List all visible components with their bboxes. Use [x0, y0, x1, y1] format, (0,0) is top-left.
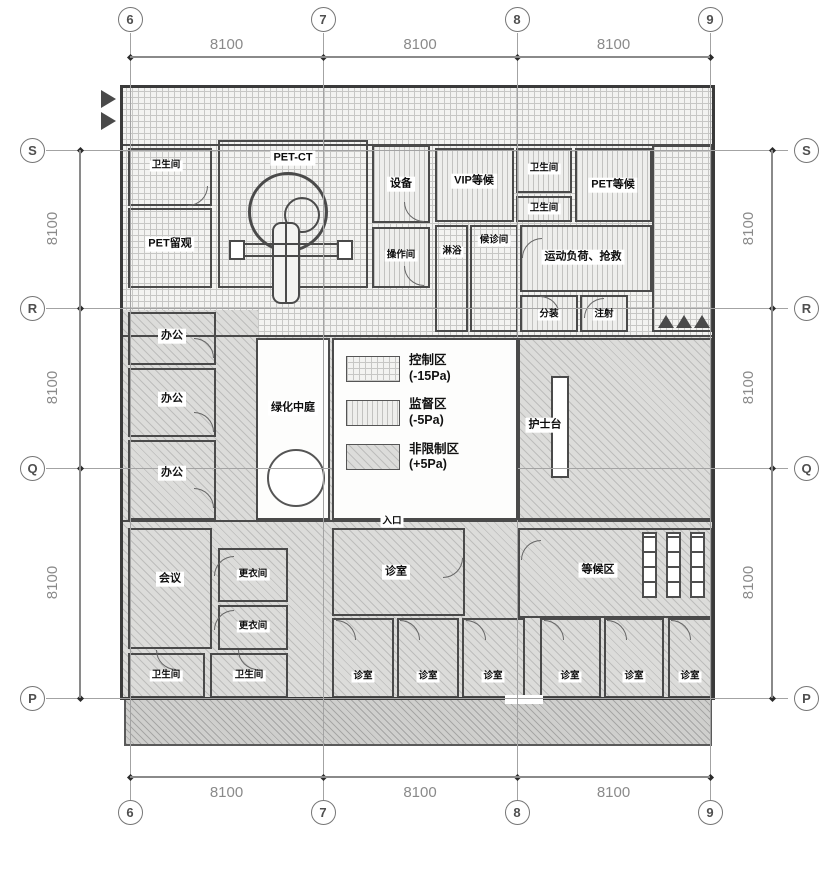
- room-label-shower: 淋浴: [440, 247, 463, 258]
- dim-line-left: [79, 150, 81, 698]
- grid-bubble-left-Q: Q: [20, 456, 45, 481]
- entry-door-icon: [101, 112, 116, 130]
- pet-ct-rail-endcap-right: [337, 240, 353, 260]
- grid-bubble-top-9: 9: [698, 7, 723, 32]
- dim-label-right-0: 8100: [740, 212, 757, 245]
- room-label-waiting-zone: 等候区: [579, 563, 618, 578]
- room-label-vip-waiting: VIP等候: [451, 174, 497, 189]
- entrance-label: 入口: [380, 517, 403, 528]
- legend-zone-name: 控制区: [409, 353, 451, 369]
- gridline-col-6: [130, 33, 131, 800]
- legend-zone-pressure: (-15Pa): [409, 369, 451, 385]
- legend-zone-pressure: (+5Pa): [409, 457, 459, 473]
- legend-item-1: 监督区(-5Pa): [346, 397, 516, 428]
- pressure-zone-legend: 控制区(-15Pa)监督区(-5Pa)非限制区(+5Pa): [332, 338, 518, 520]
- grid-bubble-left-P: P: [20, 686, 45, 711]
- room-label-patient-waiting-room: 候诊间: [478, 236, 511, 247]
- dim-label-bottom-0: 8100: [210, 784, 243, 801]
- legend-swatch-cross: [346, 356, 400, 382]
- room-label-control-room: 操作间: [385, 251, 418, 262]
- legend-item-2: 非限制区(+5Pa): [346, 442, 516, 473]
- gridline-col-7: [323, 33, 324, 800]
- room-label-consult-6: 诊室: [678, 672, 701, 683]
- room-label-locker-1: 更衣间: [237, 570, 270, 581]
- dim-line-top: [130, 56, 710, 58]
- room-label-meeting: 会议: [156, 572, 184, 587]
- dim-label-top-0: 8100: [210, 36, 243, 53]
- legend-label: 监督区(-5Pa): [409, 397, 447, 428]
- pet-ct-rail-icon: [231, 243, 353, 257]
- room-label-consult-2: 诊室: [416, 672, 439, 683]
- room-label-dispensing: 分装: [537, 310, 560, 321]
- room-label-toilet-bottom-1: 卫生间: [150, 671, 183, 682]
- room-label-stress-rescue: 运动负荷、抢救: [542, 250, 625, 265]
- grid-bubble-left-S: S: [20, 138, 45, 163]
- grid-bubble-bottom-9: 9: [698, 800, 723, 825]
- grid-bubble-top-6: 6: [118, 7, 143, 32]
- grid-bubble-bottom-6: 6: [118, 800, 143, 825]
- dim-label-bottom-2: 8100: [597, 784, 630, 801]
- room-label-consult-4: 诊室: [558, 672, 581, 683]
- double-door-icon: [676, 315, 692, 328]
- pet-ct-rail-endcap-left: [229, 240, 245, 260]
- grid-bubble-left-R: R: [20, 296, 45, 321]
- legend-label: 控制区(-15Pa): [409, 353, 451, 384]
- room-label-office-2: 办公: [158, 392, 186, 407]
- atrium-tree-icon: [267, 449, 325, 507]
- room-label-pet-observation: PET留观: [145, 237, 194, 252]
- dim-label-bottom-1: 8100: [403, 784, 436, 801]
- dim-label-top-1: 8100: [403, 36, 436, 53]
- waiting-bench-icon: [642, 532, 657, 598]
- legend-swatch-diag: [346, 444, 400, 470]
- dim-label-left-0: 8100: [44, 212, 61, 245]
- floor-plan: 卫生间PET-CTPET留观设备操作间VIP等候卫生间卫生间PET等候淋浴候诊间…: [0, 0, 833, 874]
- room-label-locker-2: 更衣间: [237, 622, 270, 633]
- room-label-pet-waiting: PET等候: [588, 178, 637, 193]
- room-label-green-atrium: 绿化中庭: [268, 401, 318, 416]
- grid-bubble-bottom-8: 8: [505, 800, 530, 825]
- entrance-opening: [505, 695, 543, 704]
- dim-label-left-2: 8100: [44, 566, 61, 599]
- legend-zone-pressure: (-5Pa): [409, 413, 447, 429]
- legend-item-0: 控制区(-15Pa): [346, 353, 516, 384]
- room-label-injection: 注射: [592, 310, 615, 321]
- room-label-pet-ct: PET-CT: [270, 151, 315, 166]
- dim-line-bottom: [130, 776, 710, 778]
- double-door-icon: [694, 315, 710, 328]
- room-label-office-3: 办公: [158, 466, 186, 481]
- grid-bubble-top-8: 8: [505, 7, 530, 32]
- gridline-col-9: [710, 33, 711, 800]
- room-label-nurse-area: 护士台: [526, 418, 565, 433]
- room-label-toilet-right-2: 卫生间: [528, 204, 561, 215]
- room-label-consult-1: 诊室: [351, 672, 374, 683]
- room-label-toilet-bottom-2: 卫生间: [233, 671, 266, 682]
- dim-line-right: [771, 150, 773, 698]
- grid-bubble-right-R: R: [794, 296, 819, 321]
- grid-bubble-top-7: 7: [311, 7, 336, 32]
- dim-label-right-1: 8100: [740, 371, 757, 404]
- dim-label-top-2: 8100: [597, 36, 630, 53]
- double-door-icon: [658, 315, 674, 328]
- gridline-row-P: [46, 698, 788, 699]
- gridline-row-R: [46, 308, 788, 309]
- waiting-bench-icon: [666, 532, 681, 598]
- entry-door-icon: [101, 90, 116, 108]
- bottom-terrace-hatch: [124, 700, 712, 746]
- room-label-office-1: 办公: [158, 329, 186, 344]
- legend-swatch-vlines: [346, 400, 400, 426]
- room-label-consult-5: 诊室: [622, 672, 645, 683]
- legend-zone-name: 监督区: [409, 397, 447, 413]
- waiting-bench-icon: [690, 532, 705, 598]
- dim-label-right-2: 8100: [740, 566, 757, 599]
- dim-label-left-1: 8100: [44, 371, 61, 404]
- room-label-toilet-right-1: 卫生间: [528, 164, 561, 175]
- room-label-equipment: 设备: [387, 177, 415, 192]
- grid-bubble-right-P: P: [794, 686, 819, 711]
- grid-bubble-right-Q: Q: [794, 456, 819, 481]
- legend-zone-name: 非限制区: [409, 442, 459, 458]
- room-label-consult-3: 诊室: [481, 672, 504, 683]
- gridline-row-S: [46, 150, 788, 151]
- room-label-consult-large: 诊室: [382, 565, 410, 580]
- legend-label: 非限制区(+5Pa): [409, 442, 459, 473]
- pet-ct-table-line: [285, 224, 287, 302]
- grid-bubble-right-S: S: [794, 138, 819, 163]
- grid-bubble-bottom-7: 7: [311, 800, 336, 825]
- room-label-toilet-top-left: 卫生间: [150, 161, 183, 172]
